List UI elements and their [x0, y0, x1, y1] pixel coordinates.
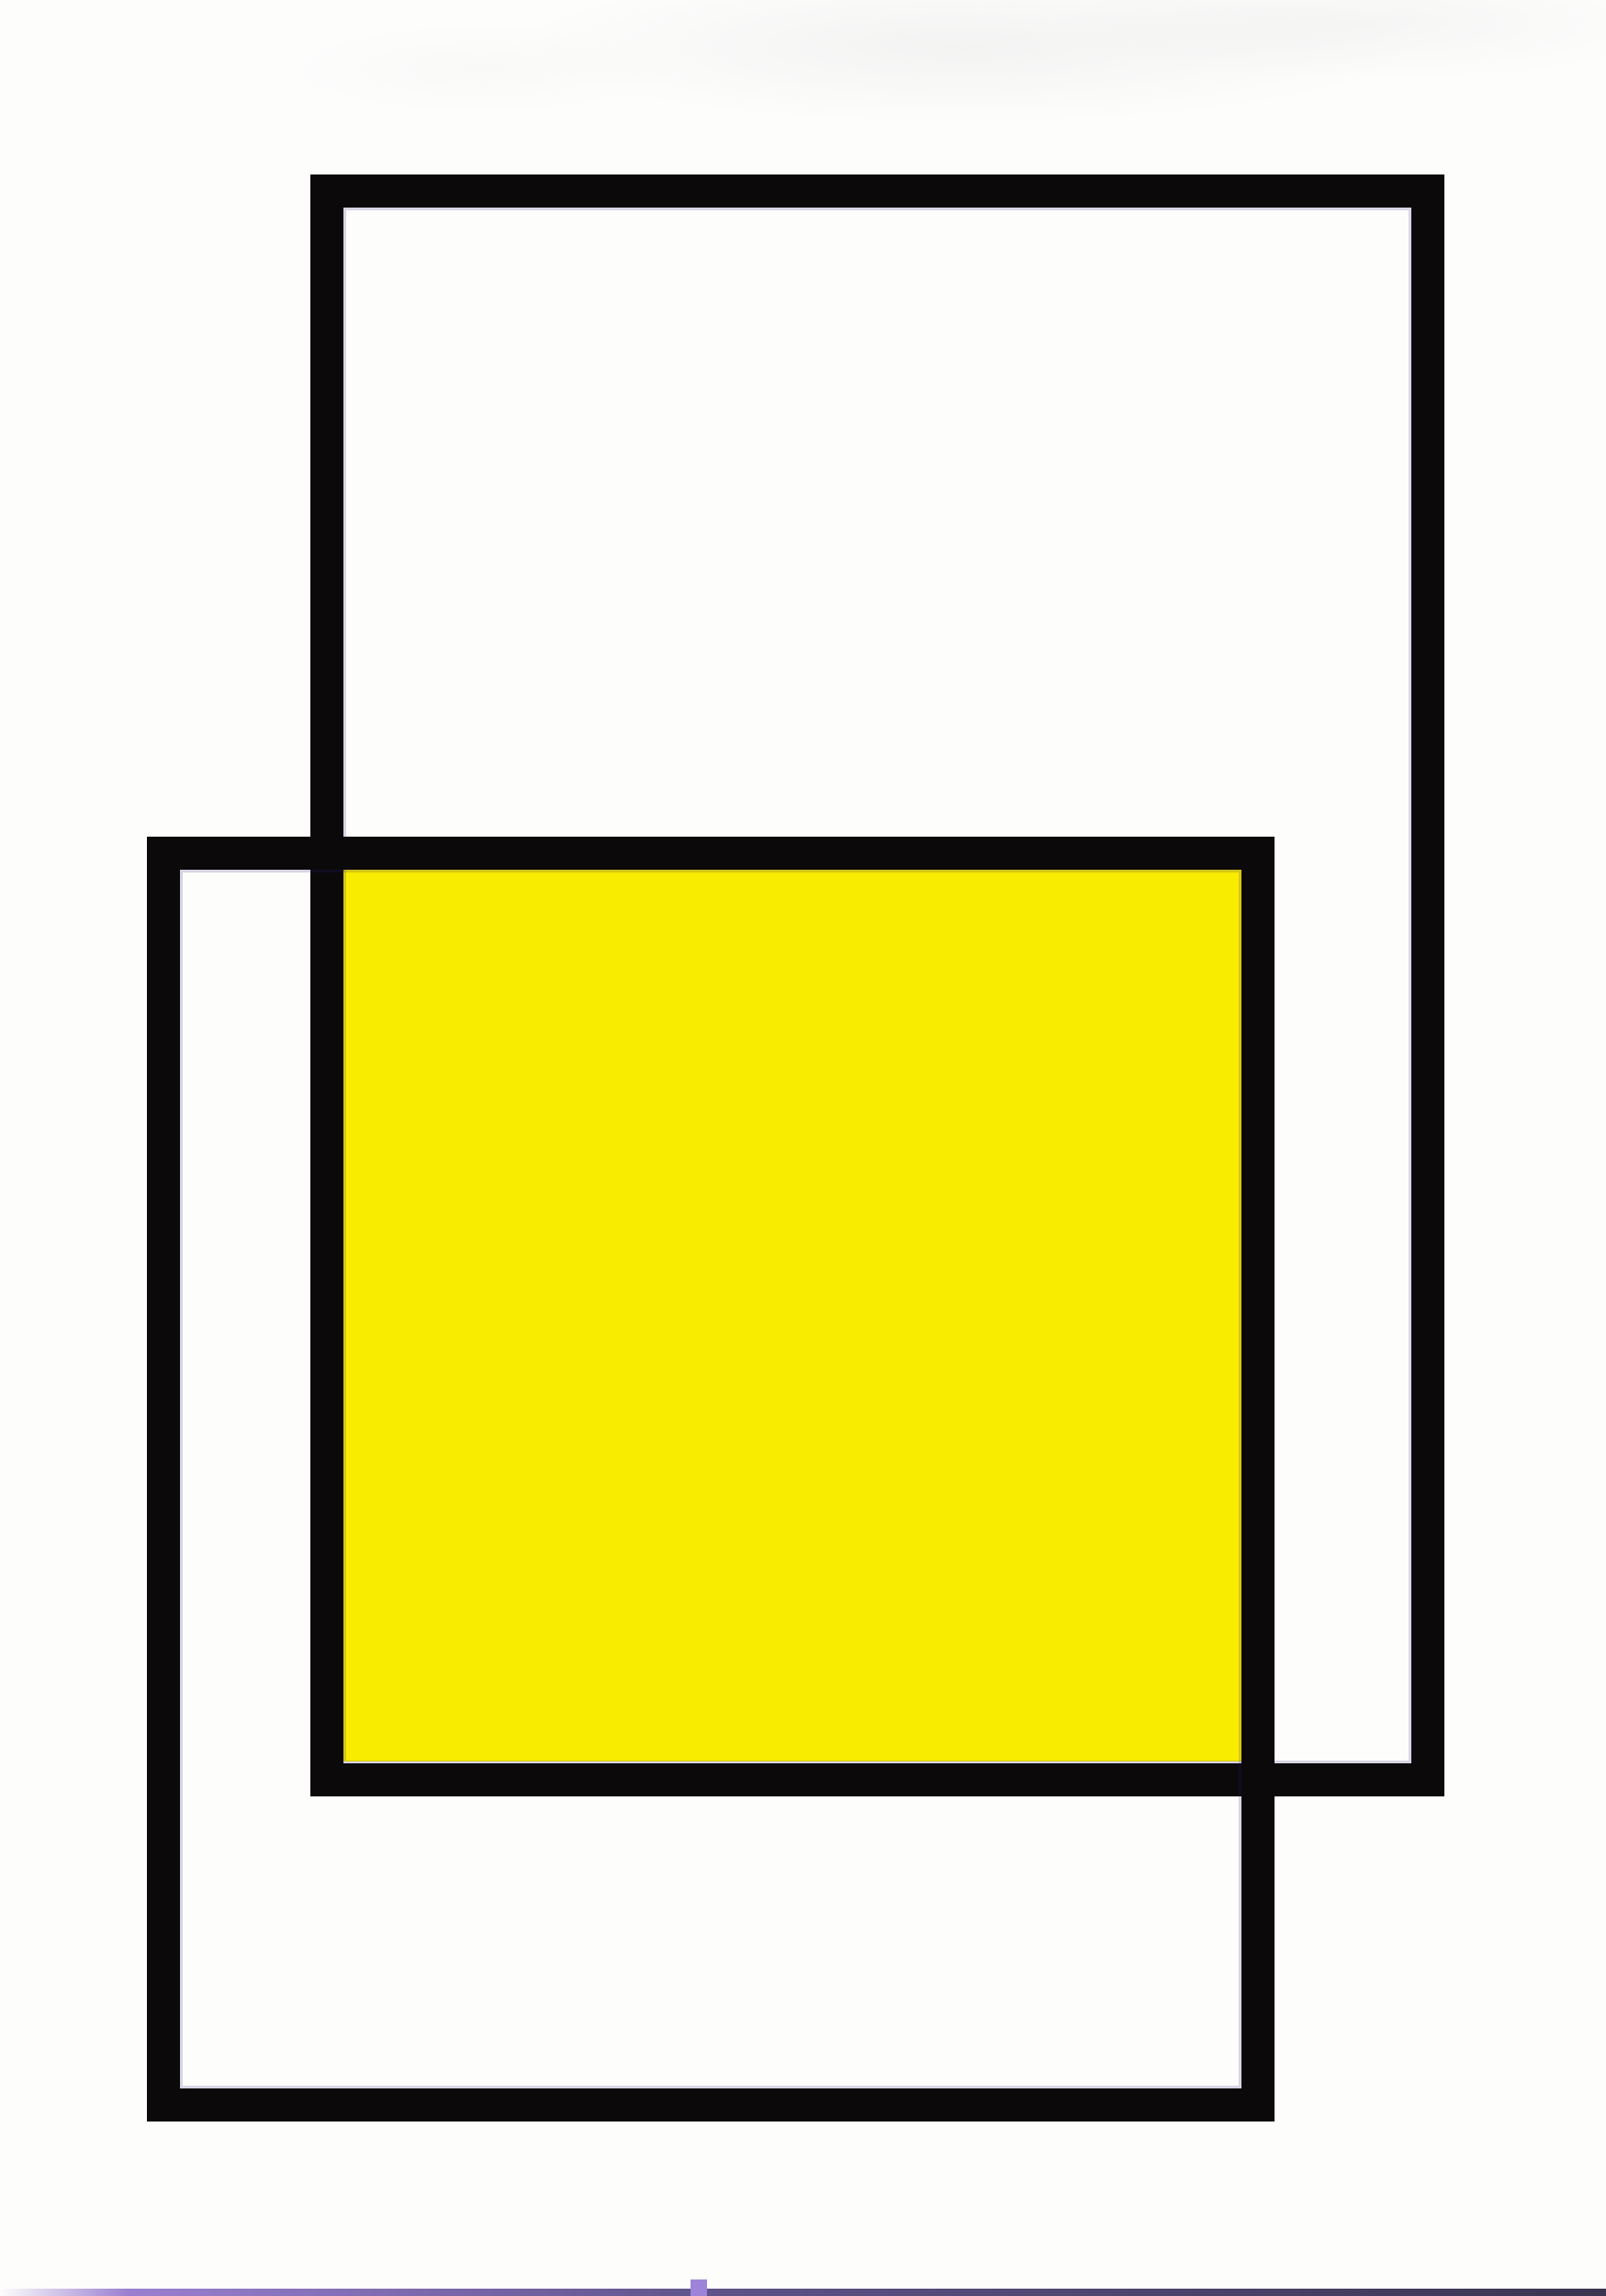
scan-bottom-edge-line: [0, 2289, 1606, 2296]
scan-bottom-edge-tick: [691, 2279, 707, 2296]
lower-left-rectangle-outline: [147, 837, 1275, 2122]
artwork-canvas: [0, 0, 1606, 2296]
